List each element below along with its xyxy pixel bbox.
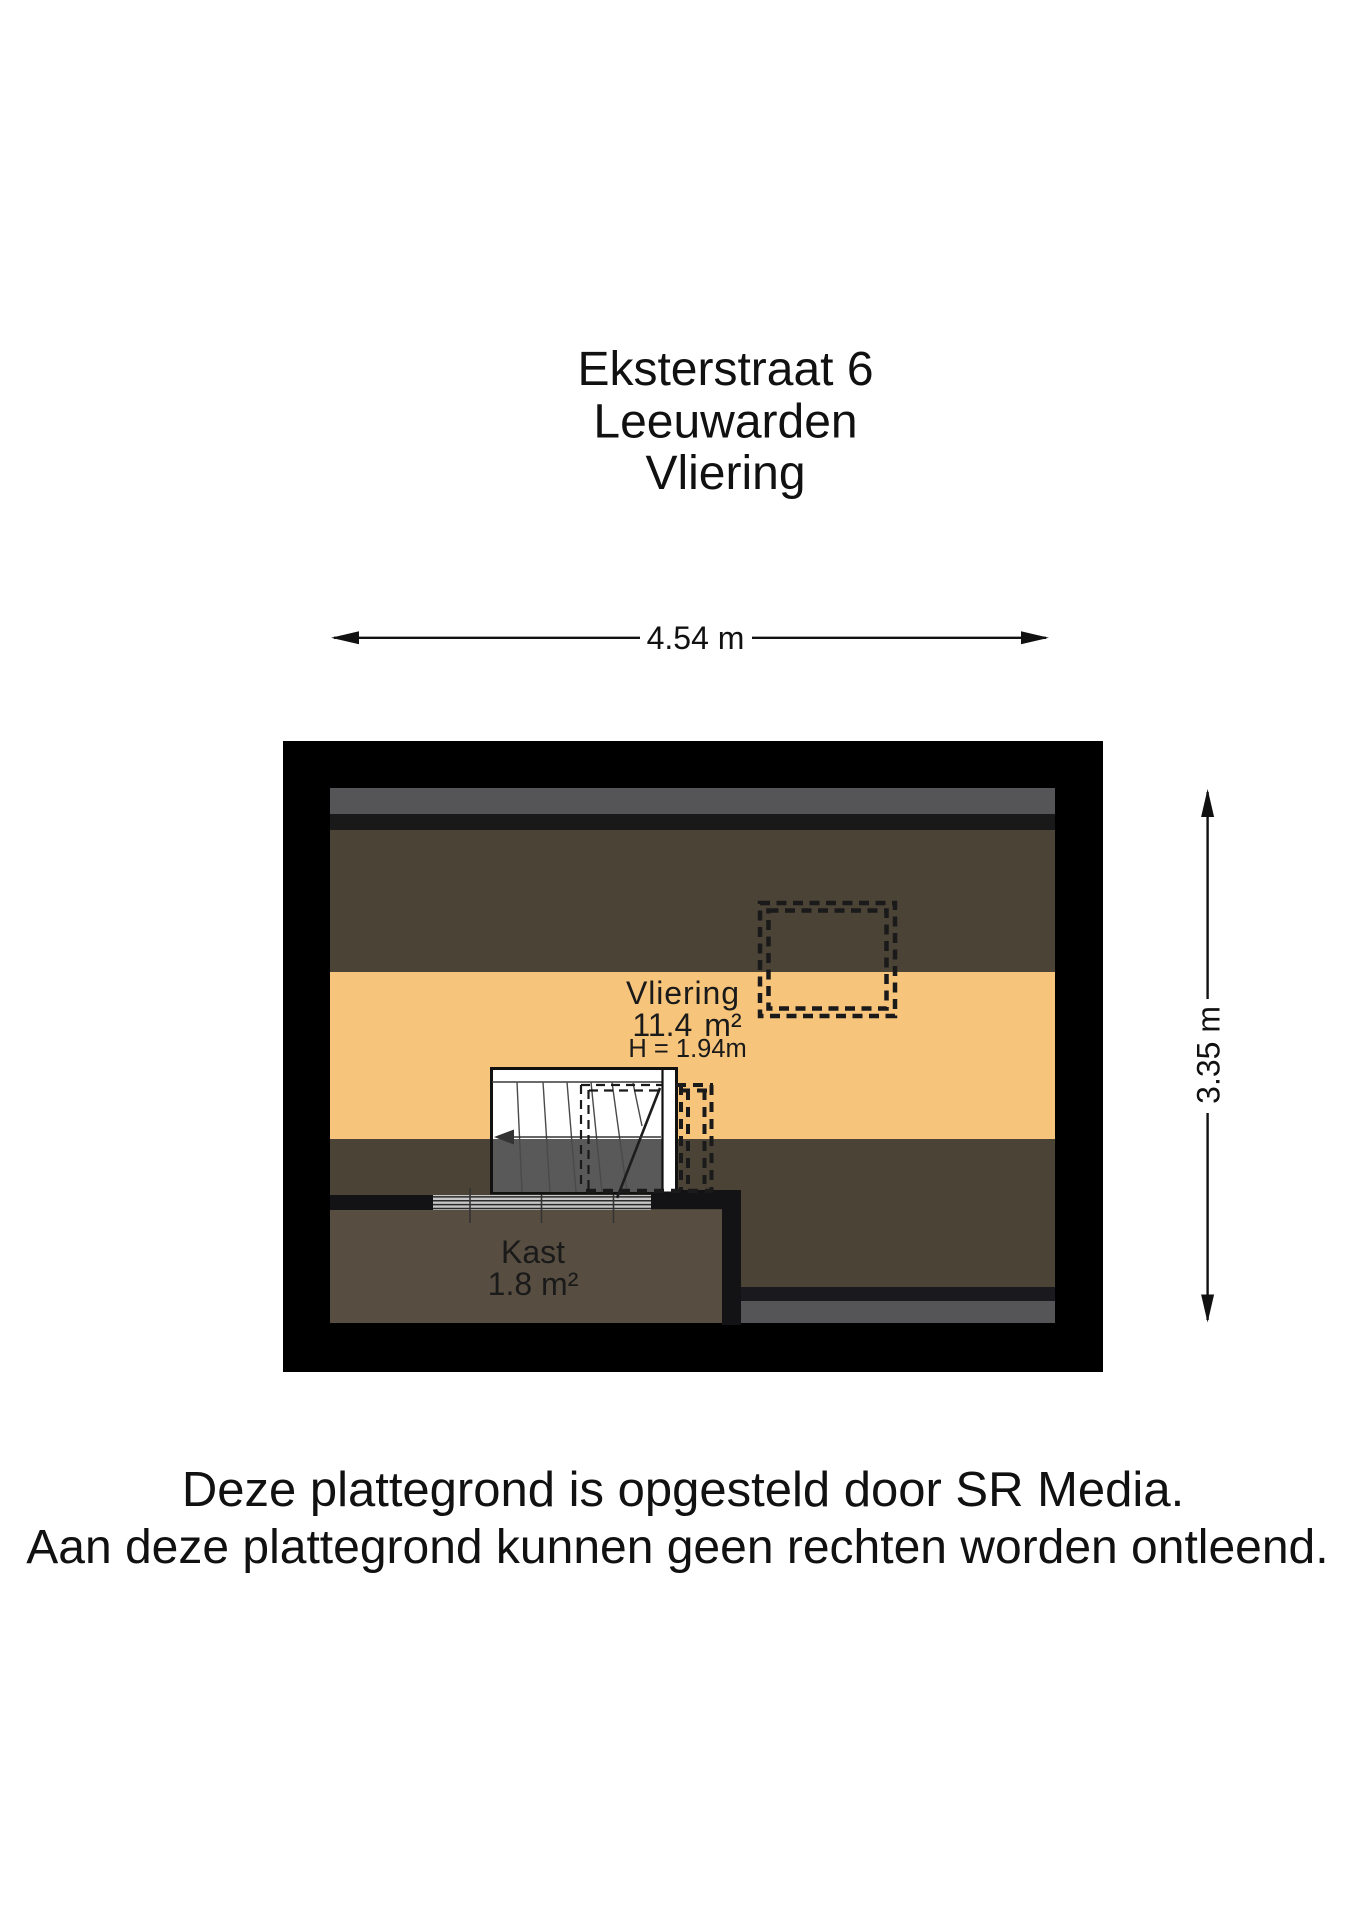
svg-text:Aan deze plattegrond kunnen ge: Aan deze plattegrond kunnen geen rechten… [26,1521,1328,1574]
svg-text:Leeuwarden: Leeuwarden [593,396,857,449]
svg-text:Vliering: Vliering [645,447,805,500]
svg-text:3.35 m: 3.35 m [1191,1006,1227,1104]
svg-text:1.8 m²: 1.8 m² [488,1266,579,1302]
svg-text:Deze plattegrond is opgesteld: Deze plattegrond is opgesteld door SR Me… [182,1463,1184,1517]
svg-text:Vliering: Vliering [626,975,740,1011]
svg-text:H = 1.94m: H = 1.94m [628,1035,746,1063]
svg-text:Kast: Kast [501,1234,565,1270]
svg-text:Eksterstraat 6: Eksterstraat 6 [577,343,873,396]
svg-text:4.54 m: 4.54 m [647,620,745,656]
